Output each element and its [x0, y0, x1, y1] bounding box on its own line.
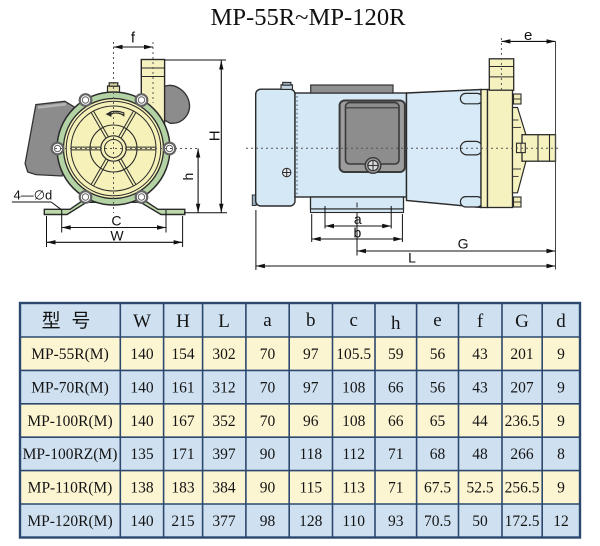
svg-text:MP-55R~MP-120R: MP-55R~MP-120R [210, 4, 406, 31]
svg-text:h: h [391, 313, 401, 334]
svg-text:9: 9 [557, 413, 565, 430]
svg-text:C: C [111, 212, 121, 228]
svg-text:b: b [306, 310, 316, 331]
svg-text:H: H [176, 311, 190, 332]
svg-text:110: 110 [342, 513, 365, 530]
svg-text:140: 140 [130, 413, 154, 430]
svg-text:97: 97 [303, 379, 319, 396]
svg-text:93: 93 [388, 513, 404, 530]
svg-text:H: H [206, 130, 223, 141]
svg-text:201: 201 [510, 346, 533, 363]
svg-text:MP-100R(M): MP-100R(M) [27, 413, 112, 430]
svg-text:183: 183 [171, 480, 195, 497]
svg-text:113: 113 [342, 480, 365, 497]
svg-text:161: 161 [171, 379, 194, 396]
svg-text:105.5: 105.5 [336, 346, 371, 363]
svg-text:G: G [458, 236, 469, 252]
svg-text:d: d [556, 311, 566, 332]
svg-text:112: 112 [342, 446, 365, 463]
svg-text:44: 44 [472, 413, 488, 430]
svg-text:68: 68 [430, 446, 446, 463]
svg-text:266: 266 [510, 446, 534, 463]
svg-text:9: 9 [557, 480, 565, 497]
svg-text:9: 9 [557, 346, 565, 363]
svg-text:71: 71 [388, 480, 404, 497]
svg-text:207: 207 [510, 379, 534, 396]
svg-text:52.5: 52.5 [466, 480, 493, 497]
svg-text:43: 43 [472, 379, 488, 396]
svg-text:MP-120R(M): MP-120R(M) [27, 513, 112, 530]
svg-text:236.5: 236.5 [505, 413, 540, 430]
svg-text:215: 215 [171, 513, 195, 530]
svg-text:65: 65 [430, 413, 446, 430]
svg-text:140: 140 [130, 346, 154, 363]
svg-text:397: 397 [212, 446, 236, 463]
svg-text:154: 154 [171, 346, 195, 363]
svg-text:108: 108 [342, 379, 366, 396]
svg-text:97: 97 [303, 346, 319, 363]
svg-text:108: 108 [342, 413, 366, 430]
svg-text:66: 66 [388, 413, 404, 430]
svg-text:256.5: 256.5 [505, 480, 540, 497]
svg-text:71: 71 [388, 446, 404, 463]
svg-text:56: 56 [430, 346, 446, 363]
svg-text:70.5: 70.5 [424, 513, 451, 530]
svg-text:98: 98 [260, 513, 276, 530]
svg-text:312: 312 [212, 379, 235, 396]
svg-text:f: f [131, 30, 136, 47]
svg-text:167: 167 [171, 413, 195, 430]
svg-text:56: 56 [430, 379, 446, 396]
svg-text:115: 115 [299, 480, 322, 497]
svg-text:MP-70R(M): MP-70R(M) [31, 379, 109, 396]
svg-text:140: 140 [130, 513, 154, 530]
svg-text:W: W [133, 311, 151, 332]
svg-text:f: f [477, 311, 484, 332]
svg-text:171: 171 [171, 446, 194, 463]
svg-text:W: W [110, 228, 124, 244]
svg-text:138: 138 [130, 480, 154, 497]
svg-text:4—∅d: 4—∅d [14, 188, 53, 203]
svg-text:MP-100RZ(M): MP-100RZ(M) [23, 446, 118, 463]
svg-text:L: L [408, 250, 416, 266]
svg-text:MP-110R(M): MP-110R(M) [28, 480, 113, 497]
svg-text:型 号: 型 号 [42, 310, 94, 332]
svg-text:172.5: 172.5 [505, 513, 540, 530]
svg-text:8: 8 [557, 446, 565, 463]
svg-text:90: 90 [260, 446, 276, 463]
svg-text:302: 302 [212, 346, 235, 363]
svg-text:b: b [354, 224, 362, 240]
svg-text:L: L [218, 311, 230, 332]
svg-text:G: G [515, 311, 529, 332]
svg-text:66: 66 [388, 379, 404, 396]
svg-text:c: c [349, 310, 357, 331]
svg-text:352: 352 [212, 413, 235, 430]
svg-text:140: 140 [130, 379, 154, 396]
svg-text:90: 90 [260, 480, 276, 497]
svg-text:96: 96 [303, 413, 319, 430]
svg-text:59: 59 [388, 346, 404, 363]
svg-text:135: 135 [130, 446, 154, 463]
svg-text:MP-55R(M): MP-55R(M) [31, 346, 109, 363]
svg-text:67.5: 67.5 [424, 480, 451, 497]
svg-text:377: 377 [212, 513, 236, 530]
svg-text:128: 128 [299, 513, 323, 530]
svg-text:48: 48 [472, 446, 488, 463]
svg-text:70: 70 [260, 379, 276, 396]
svg-text:118: 118 [299, 446, 322, 463]
svg-text:50: 50 [472, 513, 488, 530]
svg-text:43: 43 [472, 346, 488, 363]
svg-text:9: 9 [557, 379, 565, 396]
svg-text:384: 384 [212, 480, 236, 497]
svg-text:70: 70 [260, 413, 276, 430]
svg-text:12: 12 [553, 513, 569, 530]
svg-text:h: h [180, 173, 196, 181]
svg-text:e: e [433, 310, 441, 331]
svg-text:a: a [263, 310, 272, 331]
svg-text:70: 70 [260, 346, 276, 363]
